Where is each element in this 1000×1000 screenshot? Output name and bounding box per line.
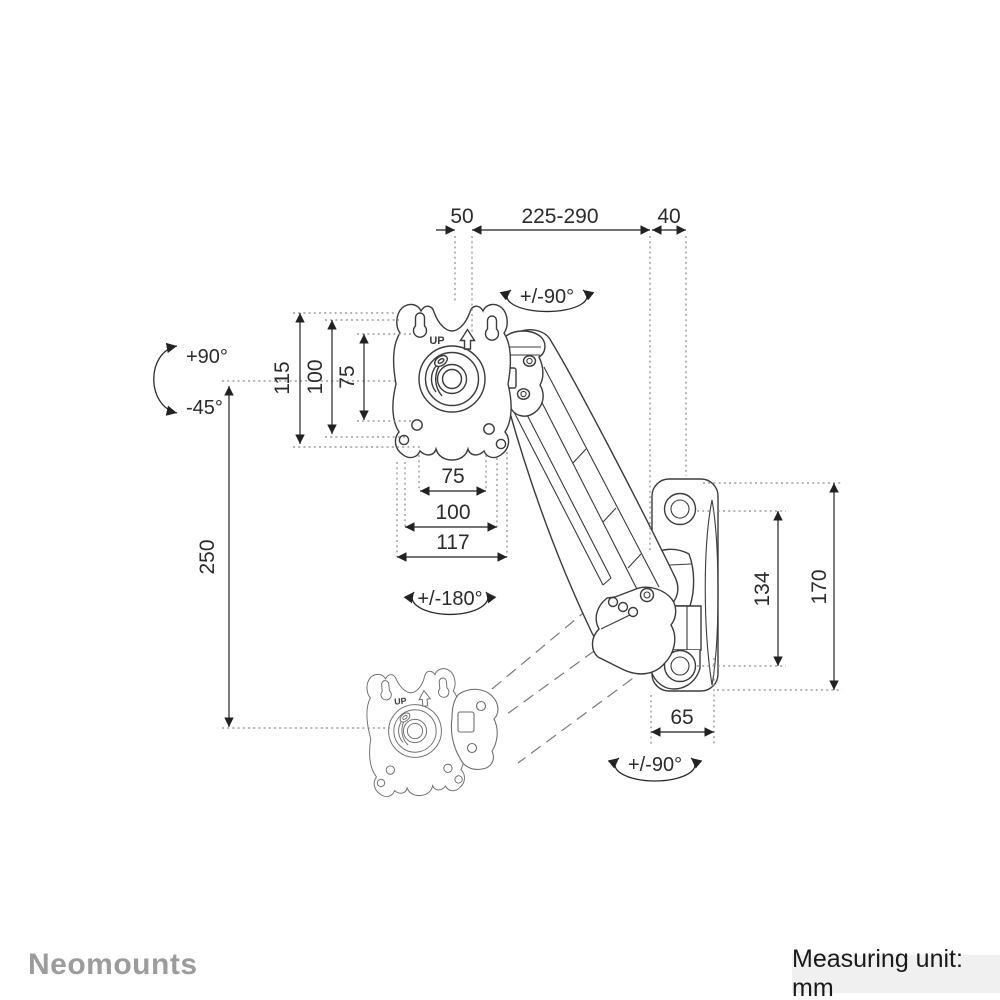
measuring-unit-bar: Measuring unit: mm xyxy=(792,955,1000,993)
rot-tilt-down: -45° xyxy=(186,397,223,419)
dimension-labels: 50 225-290 40 115 100 75 250 75 100 117 … xyxy=(196,205,831,729)
dim-vesa-height-115: 115 xyxy=(271,361,294,394)
tilt-arc xyxy=(154,346,177,413)
bracket-screw-hole-top xyxy=(665,494,696,525)
dim-vesa-width-75: 75 xyxy=(441,465,464,488)
dim-hole-spacing-134: 134 xyxy=(751,571,774,606)
dim-plate-width-117: 117 xyxy=(436,531,469,554)
rot-swivel-bottom: +/-90° xyxy=(628,754,682,776)
dim-bracket-height-170: 170 xyxy=(808,569,831,604)
dim-bracket-depth-65: 65 xyxy=(670,706,693,729)
extension-lines xyxy=(222,236,842,744)
dim-arm-reach: 225-290 xyxy=(521,205,598,228)
dim-vesa-width-100: 100 xyxy=(435,501,470,524)
rot-swivel-top: +/-90° xyxy=(520,286,574,308)
vesa-plate-raised xyxy=(393,304,511,460)
pivot-bolt xyxy=(641,589,654,602)
dim-vesa-height-100: 100 xyxy=(304,359,327,394)
measuring-unit-label: Measuring unit: mm xyxy=(792,945,1000,1000)
diagram-svg: UP xyxy=(0,0,1000,1000)
arm-wall-joint xyxy=(592,587,675,674)
dim-wall-gap: 40 xyxy=(657,205,680,228)
rot-tilt-up: +90° xyxy=(186,346,228,368)
brand-logo: Neomounts xyxy=(28,948,198,982)
dim-vesa-height-75: 75 xyxy=(336,365,359,388)
technical-diagram-monitor-wall-mount: UP xyxy=(0,0,1000,1000)
dim-vertical-range-250: 250 xyxy=(196,539,219,574)
dim-top-offset: 50 xyxy=(450,205,473,228)
rot-rotate-mid: +/-180° xyxy=(417,588,482,610)
